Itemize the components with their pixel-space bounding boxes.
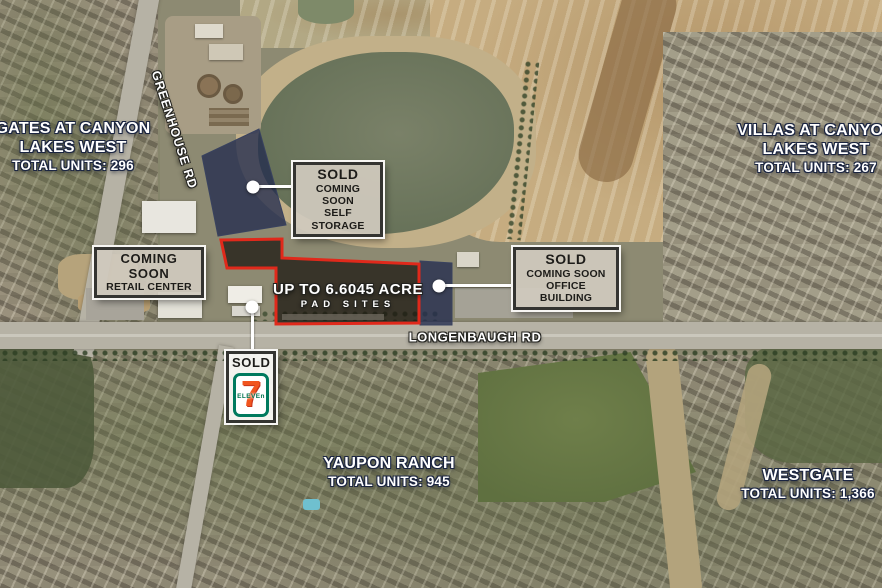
leader-dot-office (433, 280, 446, 293)
callout-subtitle: COMING SOON (299, 183, 377, 208)
callout-title: SOLD (232, 356, 270, 371)
callout-title: SOLD (519, 252, 613, 268)
area-label-line1: YAUPON RANCH (299, 455, 479, 474)
callout-subtitle: SELF STORAGE (299, 207, 377, 232)
leader-line-office (439, 284, 513, 287)
area-label-line1: WESTGATE (718, 467, 882, 486)
area-label-line1: GATES AT CANYON (0, 120, 163, 139)
callout-retail-center: COMING SOON RETAIL CENTER (94, 247, 204, 298)
aerial-site-map: GATES AT CANYON LAKES WEST TOTAL UNITS: … (0, 0, 882, 588)
pad-sites-label: UP TO 6.6045 ACRE PAD SITES (238, 281, 458, 310)
area-label-units: TOTAL UNITS: 267 (726, 160, 882, 176)
pad-sites-line1: UP TO 6.6045 ACRE (238, 281, 458, 298)
area-label-units: TOTAL UNITS: 296 (0, 158, 163, 174)
callout-subtitle: COMING SOON (519, 268, 613, 280)
area-label-westgate: WESTGATE TOTAL UNITS: 1,366 (718, 467, 882, 502)
callout-subtitle: RETAIL CENTER (100, 281, 198, 293)
construction-row (282, 314, 384, 320)
area-label-units: TOTAL UNITS: 945 (299, 474, 479, 490)
area-label-gates-at-canyon-lakes-west: GATES AT CANYON LAKES WEST TOTAL UNITS: … (0, 120, 163, 174)
seven-eleven-logo-icon: 7 ELEVEn (233, 373, 269, 417)
parcel-self-storage (202, 129, 286, 236)
leader-dot-self-storage (247, 181, 260, 194)
area-label-units: TOTAL UNITS: 1,366 (718, 486, 882, 502)
area-label-yaupon-ranch: YAUPON RANCH TOTAL UNITS: 945 (299, 455, 479, 490)
callout-office-building: SOLD COMING SOON OFFICE BUILDING (513, 247, 619, 310)
area-label-line2: LAKES WEST (726, 141, 882, 160)
callout-seven-eleven: SOLD 7 ELEVEn (226, 351, 276, 423)
area-label-line2: LAKES WEST (0, 139, 163, 158)
callout-title: COMING SOON (100, 252, 198, 281)
area-label-line1: VILLAS AT CANYON (726, 122, 882, 141)
leader-dot-seven-eleven (246, 301, 259, 314)
leader-line-seven-eleven (251, 307, 254, 351)
road-label-longenbaugh: LONGENBAUGH RD (409, 329, 542, 344)
callout-subtitle: OFFICE BUILDING (519, 280, 613, 305)
area-label-villas-at-canyon-lakes-west: VILLAS AT CANYON LAKES WEST TOTAL UNITS:… (726, 122, 882, 176)
pad-sites-line2: PAD SITES (238, 299, 458, 310)
seven-eleven-wordmark: ELEVEn (236, 393, 266, 400)
callout-self-storage: SOLD COMING SOON SELF STORAGE (293, 162, 383, 237)
callout-title: SOLD (299, 167, 377, 183)
